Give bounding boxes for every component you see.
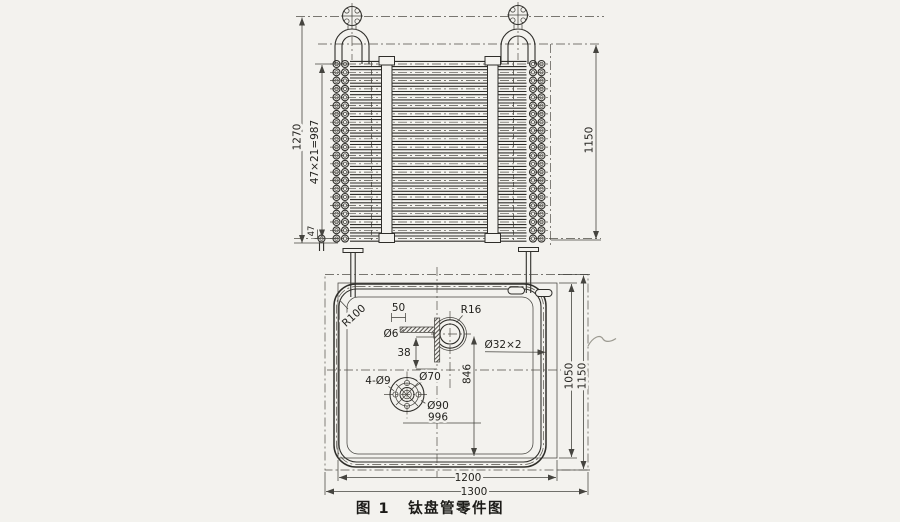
dim-38-label: 38 [397,347,410,359]
dim-1300-label: 1300 [461,486,488,498]
tube-row [330,61,549,68]
tube-row [330,110,549,117]
dim-1050-label: 1050 [564,363,576,390]
tube-row [330,135,549,142]
inner-projection-rect [338,283,557,458]
dim-dia6-label: Ø6 [384,328,399,340]
dim-996-label: 996 [428,412,448,424]
dim-pitch-label: 47×21=987 [309,120,321,184]
tube-row [330,202,549,209]
tube-row [330,69,549,76]
tube-row [330,144,549,151]
support-strap-left [379,57,395,243]
tube-row [330,185,549,192]
dim-846-label: 846 [462,364,474,384]
tube-row [330,77,549,84]
tube-stack [330,61,549,243]
top-view: 1270 47×21=987 47 1150 [292,2,605,297]
dim-1150-right-label: 1150 [577,363,589,390]
flange-left [341,6,363,27]
tube-row [330,169,549,176]
tube-row [330,219,549,226]
tube-row [330,119,549,126]
tube-row [330,210,549,217]
tube-row [330,94,549,101]
dim-dia70-label: Ø70 [419,371,441,383]
dim-1150-top-label: 1150 [584,127,596,154]
drawing-page: 1270 47×21=987 47 1150 [0,0,900,522]
dim-dia90-label: Ø90 [427,400,449,412]
figure-caption: 图 1钛盘管零件图 [356,499,504,517]
tube-row [330,235,549,242]
engineering-drawing: 1270 47×21=987 47 1150 [0,0,900,522]
tube-row [330,227,549,234]
flange-right [507,5,529,26]
tube-row [330,102,549,109]
tube-row [330,85,549,92]
plan-view: R100 50 Ø6 38 R16 Ø32×2 846 4-Ø9 Ø70 Ø90 [325,267,616,498]
figure-number: 图 1 [356,500,390,517]
tube-row [330,177,549,184]
pencil-mark [588,337,616,346]
dim-r100-label: R100 [340,302,368,329]
tube-row [330,152,549,159]
outer-projection-rect [325,275,588,471]
figure-title: 钛盘管零件图 [408,499,504,517]
tube-row [330,127,549,134]
dim-50-label: 50 [392,302,405,314]
dim-holes-label: 4-Ø9 [365,375,390,387]
dim-last-pitch-label: 47 [307,226,317,237]
dim-dia32-label: Ø32×2 [484,339,521,351]
drain-stub-horizontal [400,327,435,332]
support-strap-right [485,57,501,243]
dim-r16-label: R16 [461,304,482,316]
dim-1270-label: 1270 [292,124,304,151]
tube-row [330,194,549,201]
dim-1200-label: 1200 [455,472,482,484]
pipe-stub-vertical [435,318,440,362]
tube-row [330,160,549,167]
tube-end-stubs [508,287,552,297]
